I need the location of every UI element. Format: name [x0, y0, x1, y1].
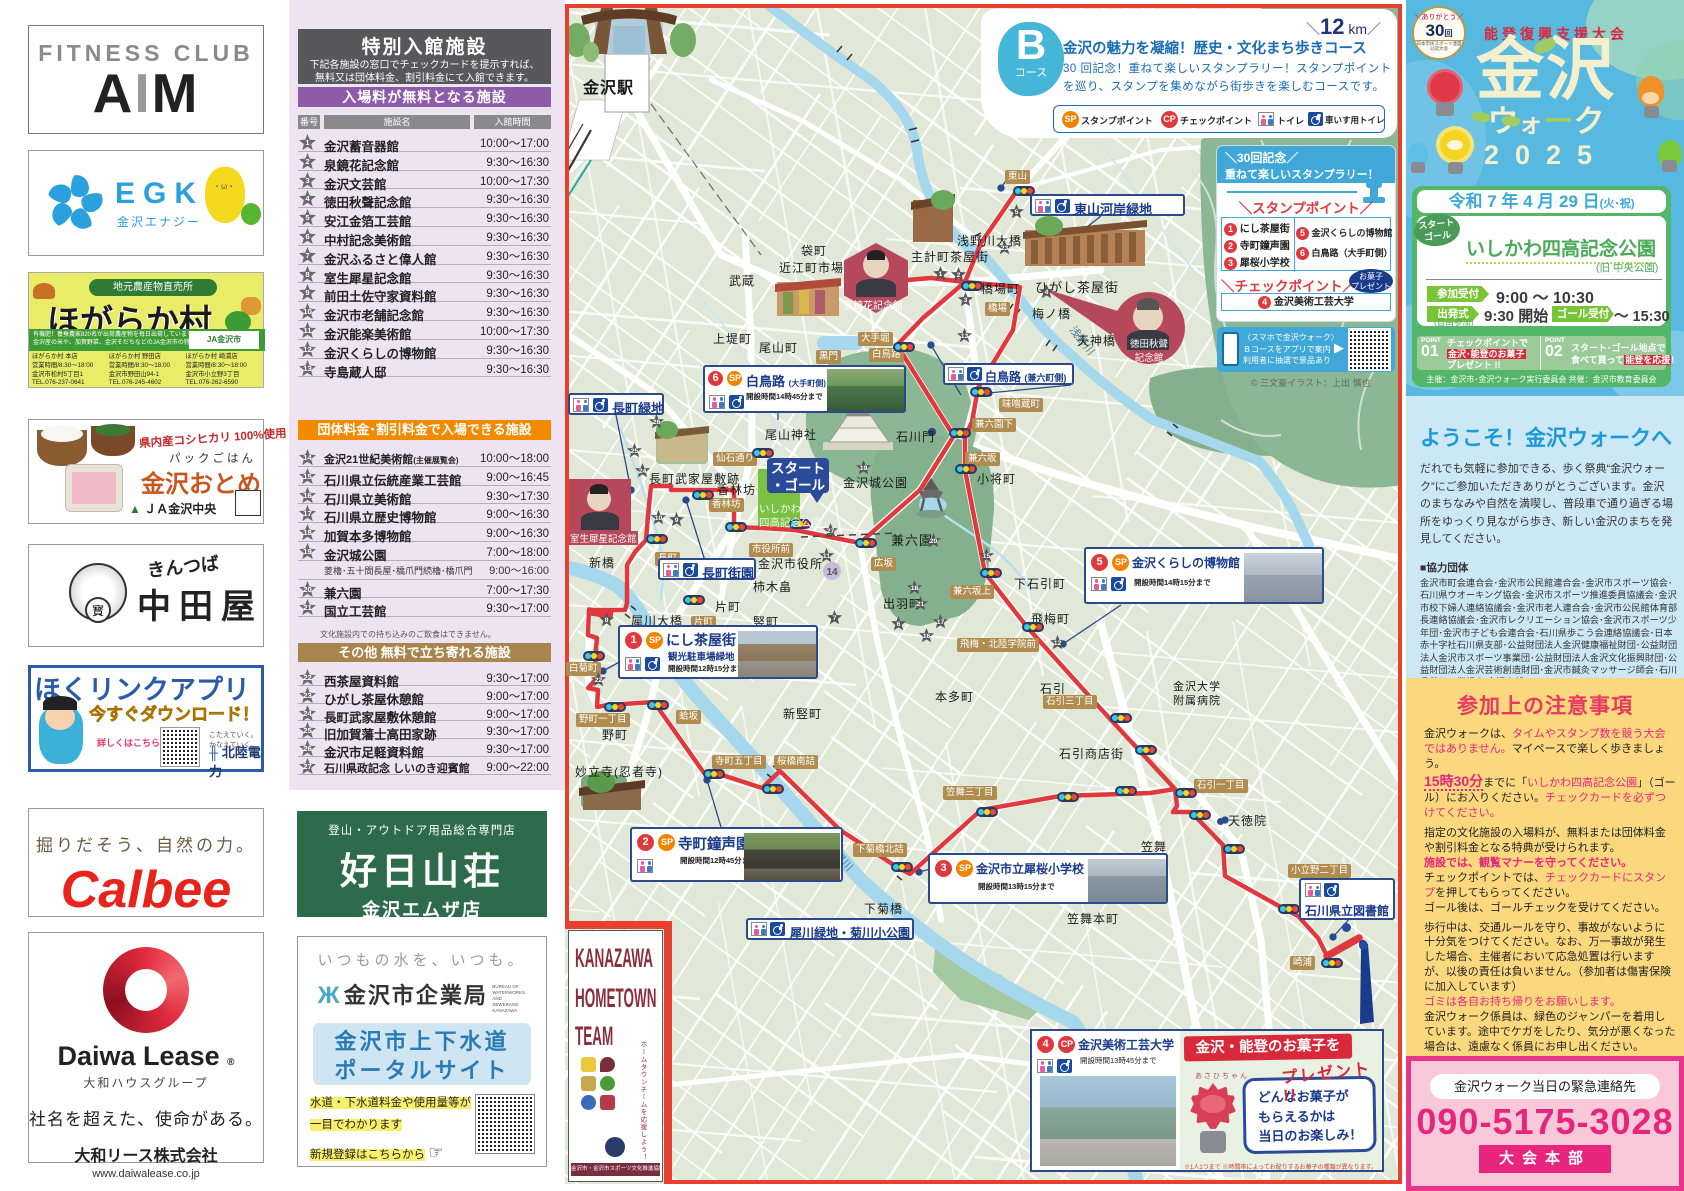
svg-text:22: 22 — [303, 673, 312, 682]
svg-text:25: 25 — [631, 448, 639, 455]
svg-text:26: 26 — [653, 419, 661, 426]
svg-text:21: 21 — [303, 603, 312, 612]
svg-text:12: 12 — [1054, 640, 1062, 647]
svg-text:24: 24 — [639, 468, 647, 475]
svg-text:11: 11 — [303, 326, 312, 335]
svg-text:2: 2 — [957, 272, 961, 279]
svg-text:22: 22 — [595, 677, 603, 684]
svg-text:9: 9 — [305, 288, 309, 297]
svg-text:14: 14 — [826, 567, 838, 578]
svg-text:14: 14 — [303, 453, 312, 462]
svg-text:7: 7 — [833, 615, 837, 622]
svg-text:9: 9 — [675, 517, 679, 524]
svg-text:5: 5 — [1015, 209, 1019, 216]
svg-text:18: 18 — [303, 528, 312, 537]
svg-text:17: 17 — [937, 619, 945, 626]
svg-text:19: 19 — [303, 547, 312, 556]
svg-text:21: 21 — [917, 601, 925, 608]
svg-text:27: 27 — [827, 528, 835, 535]
svg-text:16: 16 — [923, 633, 931, 640]
svg-text:27: 27 — [303, 762, 312, 771]
svg-text:3: 3 — [305, 176, 309, 185]
svg-text:8: 8 — [605, 617, 609, 624]
svg-text:3: 3 — [964, 297, 968, 304]
svg-text:19: 19 — [860, 465, 868, 472]
svg-text:23: 23 — [1001, 245, 1009, 252]
svg-text:20: 20 — [930, 538, 938, 545]
svg-text:6: 6 — [897, 621, 901, 628]
svg-text:6: 6 — [305, 232, 309, 241]
svg-text:16: 16 — [303, 491, 312, 500]
svg-text:13: 13 — [961, 333, 969, 340]
svg-text:1: 1 — [939, 271, 943, 278]
svg-text:11: 11 — [823, 553, 830, 560]
svg-text:13: 13 — [303, 364, 312, 373]
svg-text:24: 24 — [303, 709, 312, 718]
svg-text:10: 10 — [655, 515, 663, 522]
svg-text:23: 23 — [303, 691, 312, 700]
svg-text:17: 17 — [303, 509, 312, 518]
svg-text:2: 2 — [305, 157, 309, 166]
svg-text:25: 25 — [303, 726, 312, 735]
svg-text:10: 10 — [303, 307, 312, 316]
svg-text:12: 12 — [303, 345, 312, 354]
svg-text:15: 15 — [983, 553, 991, 560]
svg-text:15: 15 — [303, 472, 312, 481]
svg-text:26: 26 — [303, 744, 312, 753]
svg-text:20: 20 — [303, 585, 312, 594]
svg-text:7: 7 — [305, 251, 309, 260]
svg-text:18: 18 — [911, 585, 919, 592]
svg-text:4: 4 — [1045, 289, 1049, 296]
